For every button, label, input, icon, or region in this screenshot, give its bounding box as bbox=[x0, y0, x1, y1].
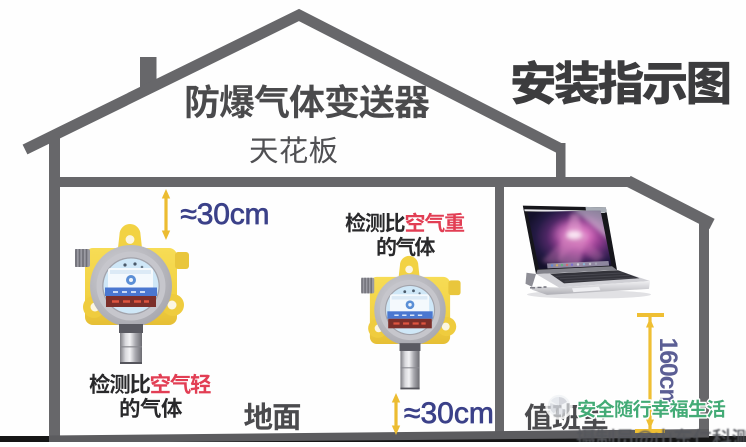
svg-text:≈30cm: ≈30cm bbox=[404, 397, 494, 430]
svg-text:≈30cm: ≈30cm bbox=[181, 198, 270, 231]
svg-text:160cm: 160cm bbox=[654, 338, 682, 410]
